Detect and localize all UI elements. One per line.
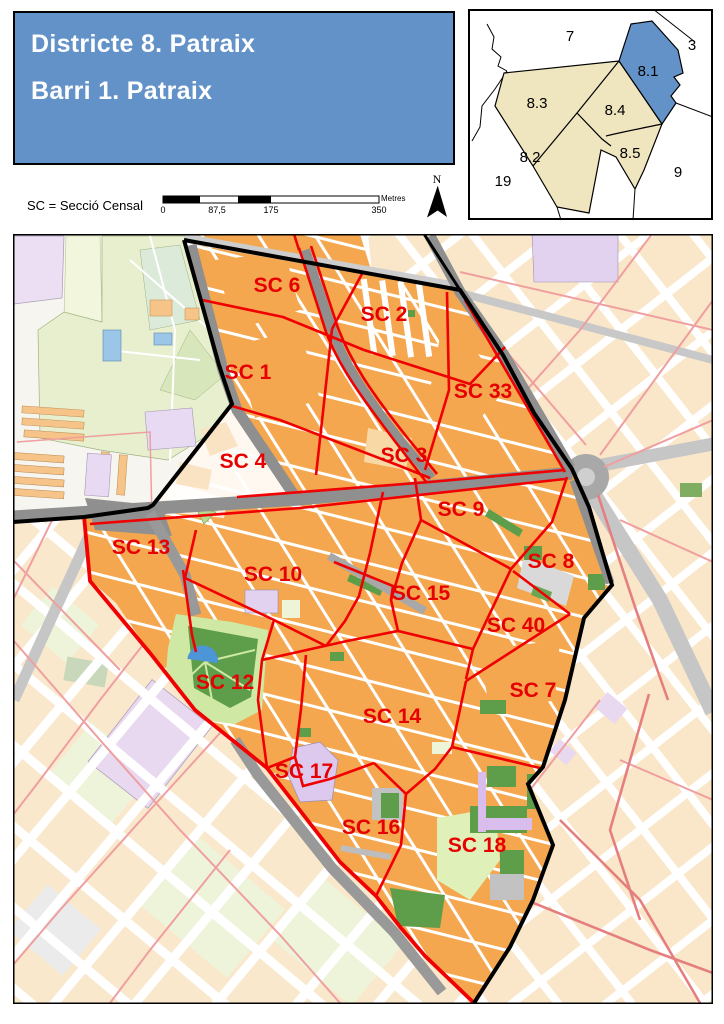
svg-text:8.2: 8.2 [520,149,541,166]
svg-text:Metres: Metres [381,194,405,203]
svg-text:SC 6: SC 6 [254,274,301,297]
svg-text:175: 175 [263,205,278,215]
svg-text:SC 2: SC 2 [361,303,408,326]
svg-text:SC 18: SC 18 [448,834,507,857]
svg-text:SC 3: SC 3 [381,444,428,467]
svg-text:350: 350 [371,205,386,215]
svg-text:SC 14: SC 14 [363,705,422,728]
svg-text:SC 4: SC 4 [220,450,267,473]
svg-text:SC 7: SC 7 [510,679,557,702]
svg-text:7: 7 [566,28,574,45]
svg-text:SC 9: SC 9 [438,498,485,521]
svg-text:8.5: 8.5 [620,145,641,162]
svg-text:87,5: 87,5 [208,205,226,215]
svg-text:SC 15: SC 15 [392,582,451,605]
svg-text:SC 13: SC 13 [112,536,170,559]
svg-text:0: 0 [160,205,165,215]
svg-text:SC 8: SC 8 [528,550,575,573]
svg-text:19: 19 [495,173,512,190]
svg-text:SC 40: SC 40 [487,614,545,637]
svg-text:SC 10: SC 10 [244,563,302,586]
svg-text:8.4: 8.4 [605,102,626,119]
svg-text:SC 16: SC 16 [342,816,400,839]
svg-text:3: 3 [688,37,696,54]
svg-text:8.3: 8.3 [527,95,548,112]
svg-text:8.1: 8.1 [638,63,659,80]
svg-text:SC 17: SC 17 [275,760,333,783]
svg-text:SC 12: SC 12 [196,671,254,694]
svg-text:SC 33: SC 33 [454,380,512,403]
svg-text:9: 9 [674,164,682,181]
svg-text:N: N [433,172,442,186]
svg-text:SC 1: SC 1 [225,361,272,384]
